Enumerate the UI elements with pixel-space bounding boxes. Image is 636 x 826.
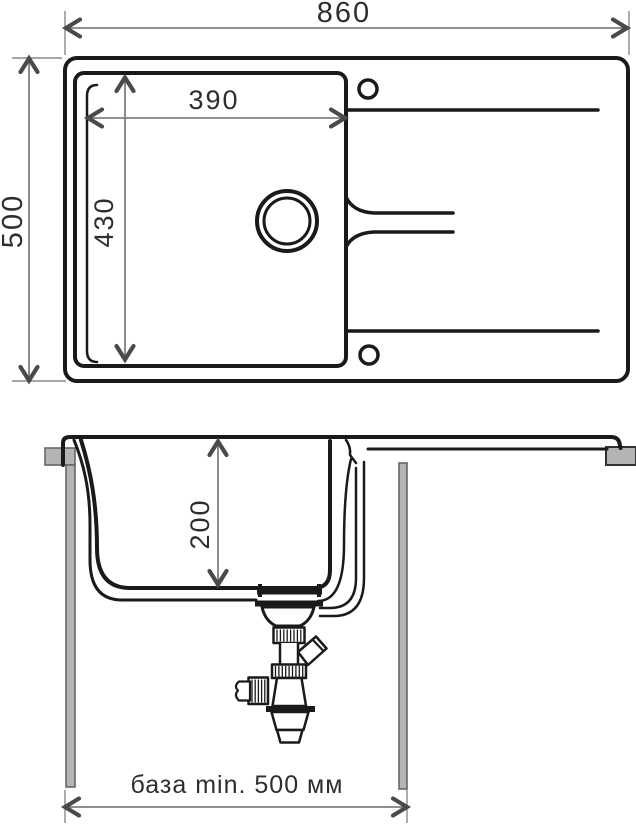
drain-hole-inner [264,198,310,244]
siphon-assembly [236,584,327,743]
dimension-label-cabinet-width: база min. 500 мм [131,771,344,799]
dimension-cabinet-width: база min. 500 мм [65,771,407,823]
siphon-pipe-fill [280,643,298,665]
drain-hole-outer [257,191,317,251]
dimension-bowl-width: 390 [88,85,345,127]
dimension-label-bowl-length: 430 [89,196,119,247]
cabinet-panel-left [66,465,75,787]
cabinet-panel-right [399,463,407,789]
siphon-body [273,678,307,706]
dimension-label-bowl-width: 390 [188,85,239,115]
siphon-cup-tip [277,730,303,743]
bowl-wall-outer-right [318,459,351,601]
countertop-block-left [45,448,75,465]
dimension-label-bowl-depth: 200 [185,498,215,549]
drain-funnel [262,607,314,626]
top-view [65,58,628,381]
siphon-outlet-stub [236,682,250,701]
sink-rim-profile [63,437,621,465]
tap-hole-top [359,80,377,98]
section-view [45,437,636,789]
overflow-pipe-outer [320,462,364,616]
siphon-cup [272,712,309,730]
drainboard-groove-middle-upper [346,197,453,213]
tap-hole-bottom [360,346,378,364]
dimension-overall-width: 860 [65,0,629,55]
drainboard-groove-middle-lower [346,232,453,247]
sink-technical-drawing: 860 500 390 430 [0,0,636,826]
siphon-nut-upper [274,628,305,644]
dimension-bowl-length: 430 [89,77,134,360]
dimension-overall-depth: 500 [0,58,66,381]
dimension-label-overall-depth: 500 [0,194,29,248]
dimension-bowl-depth: 200 [185,441,227,585]
dimension-label-overall-width: 860 [317,0,371,29]
